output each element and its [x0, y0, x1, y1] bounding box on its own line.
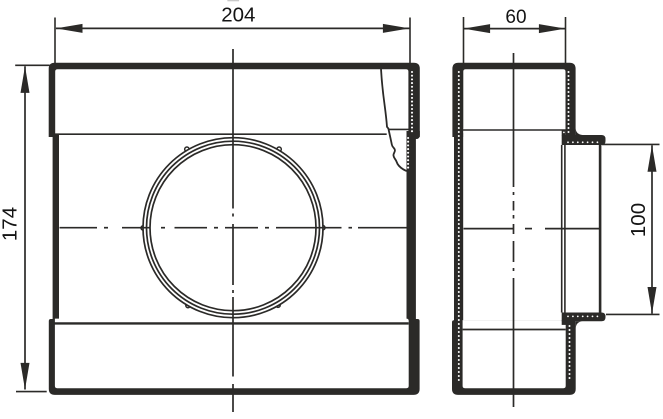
svg-text:204: 204	[221, 4, 255, 27]
svg-text:100: 100	[627, 203, 650, 237]
svg-text:174: 174	[0, 207, 22, 241]
svg-text:60: 60	[505, 7, 526, 28]
